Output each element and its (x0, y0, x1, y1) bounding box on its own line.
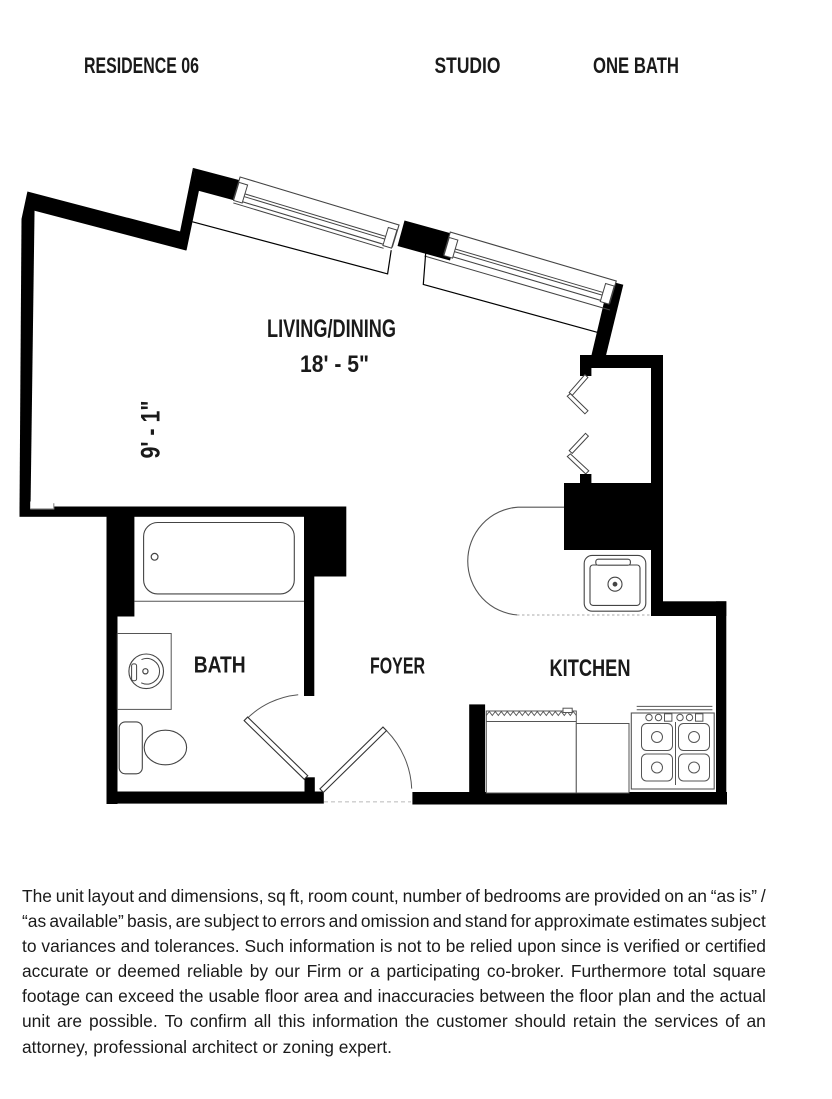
svg-text:BATH: BATH (194, 652, 246, 678)
svg-text:KITCHEN: KITCHEN (550, 655, 631, 682)
svg-text:RESIDENCE 06: RESIDENCE 06 (84, 53, 199, 78)
svg-text:FOYER: FOYER (370, 653, 425, 679)
svg-text:LIVING/DINING: LIVING/DINING (267, 315, 396, 343)
svg-text:STUDIO: STUDIO (435, 53, 501, 78)
svg-text:9' - 1": 9' - 1" (136, 401, 166, 459)
svg-text:ONE BATH: ONE BATH (593, 53, 679, 78)
svg-text:18' - 5": 18' - 5" (300, 351, 369, 378)
